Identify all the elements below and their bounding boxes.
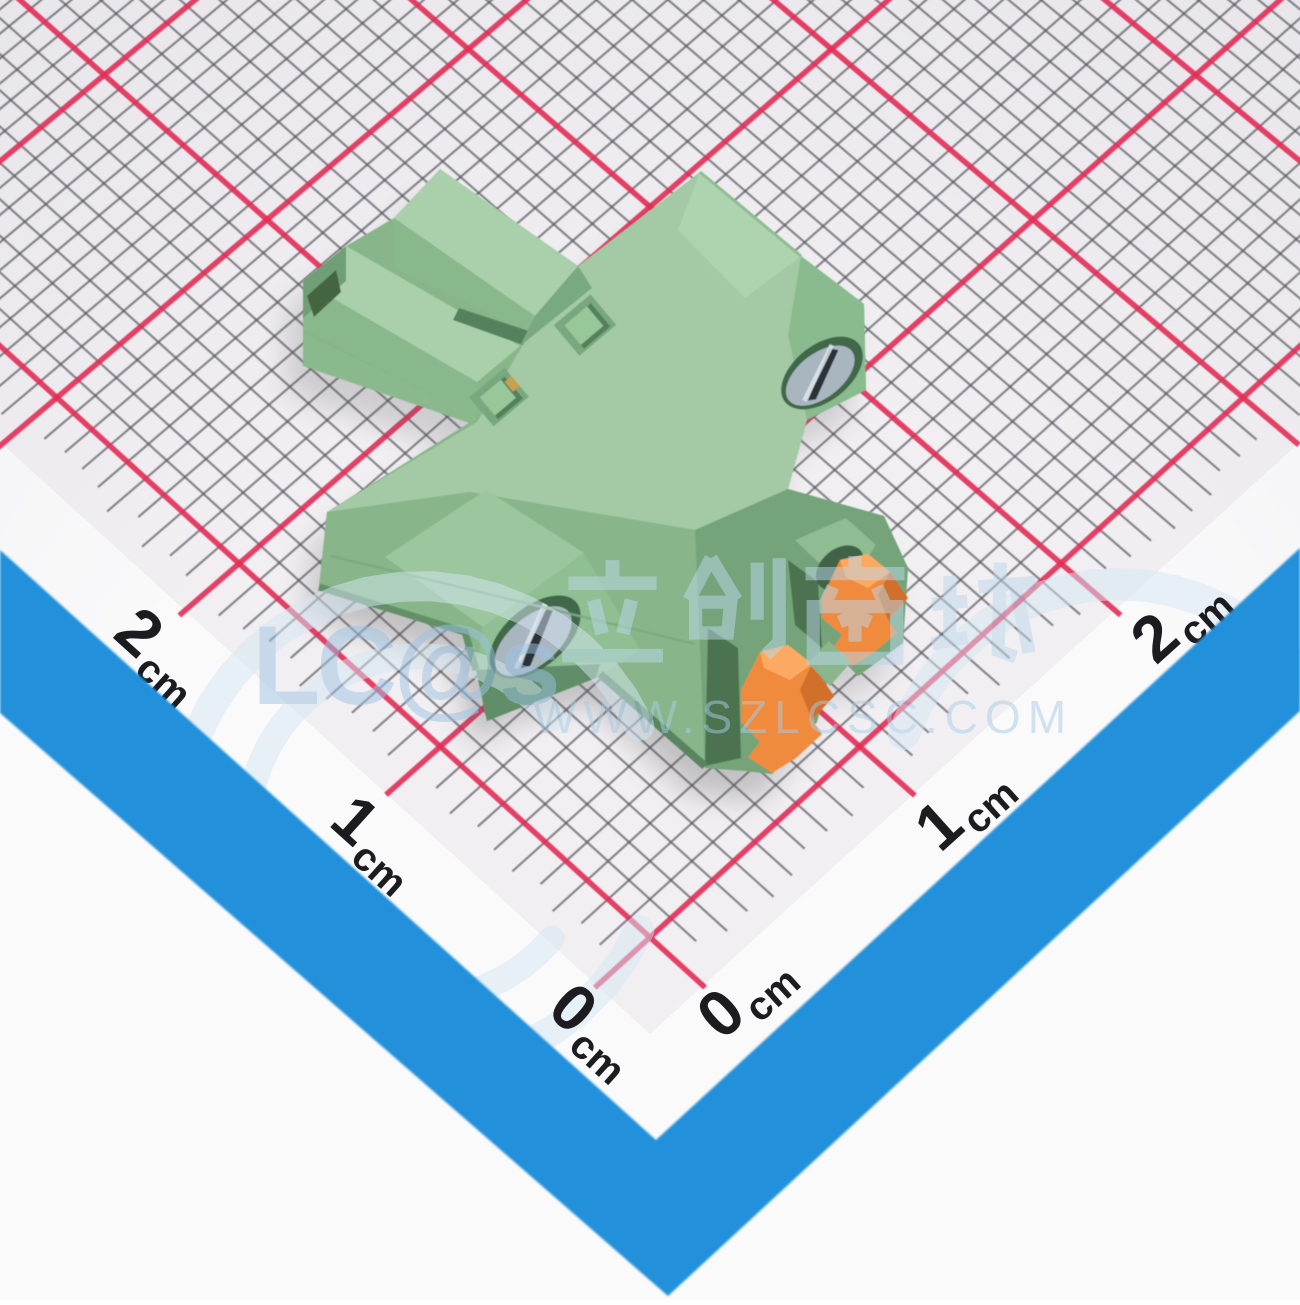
svg-text:LC@s: LC@s [252, 603, 557, 728]
svg-text:WWW.SZLCSC.COM: WWW.SZLCSC.COM [533, 691, 1073, 743]
